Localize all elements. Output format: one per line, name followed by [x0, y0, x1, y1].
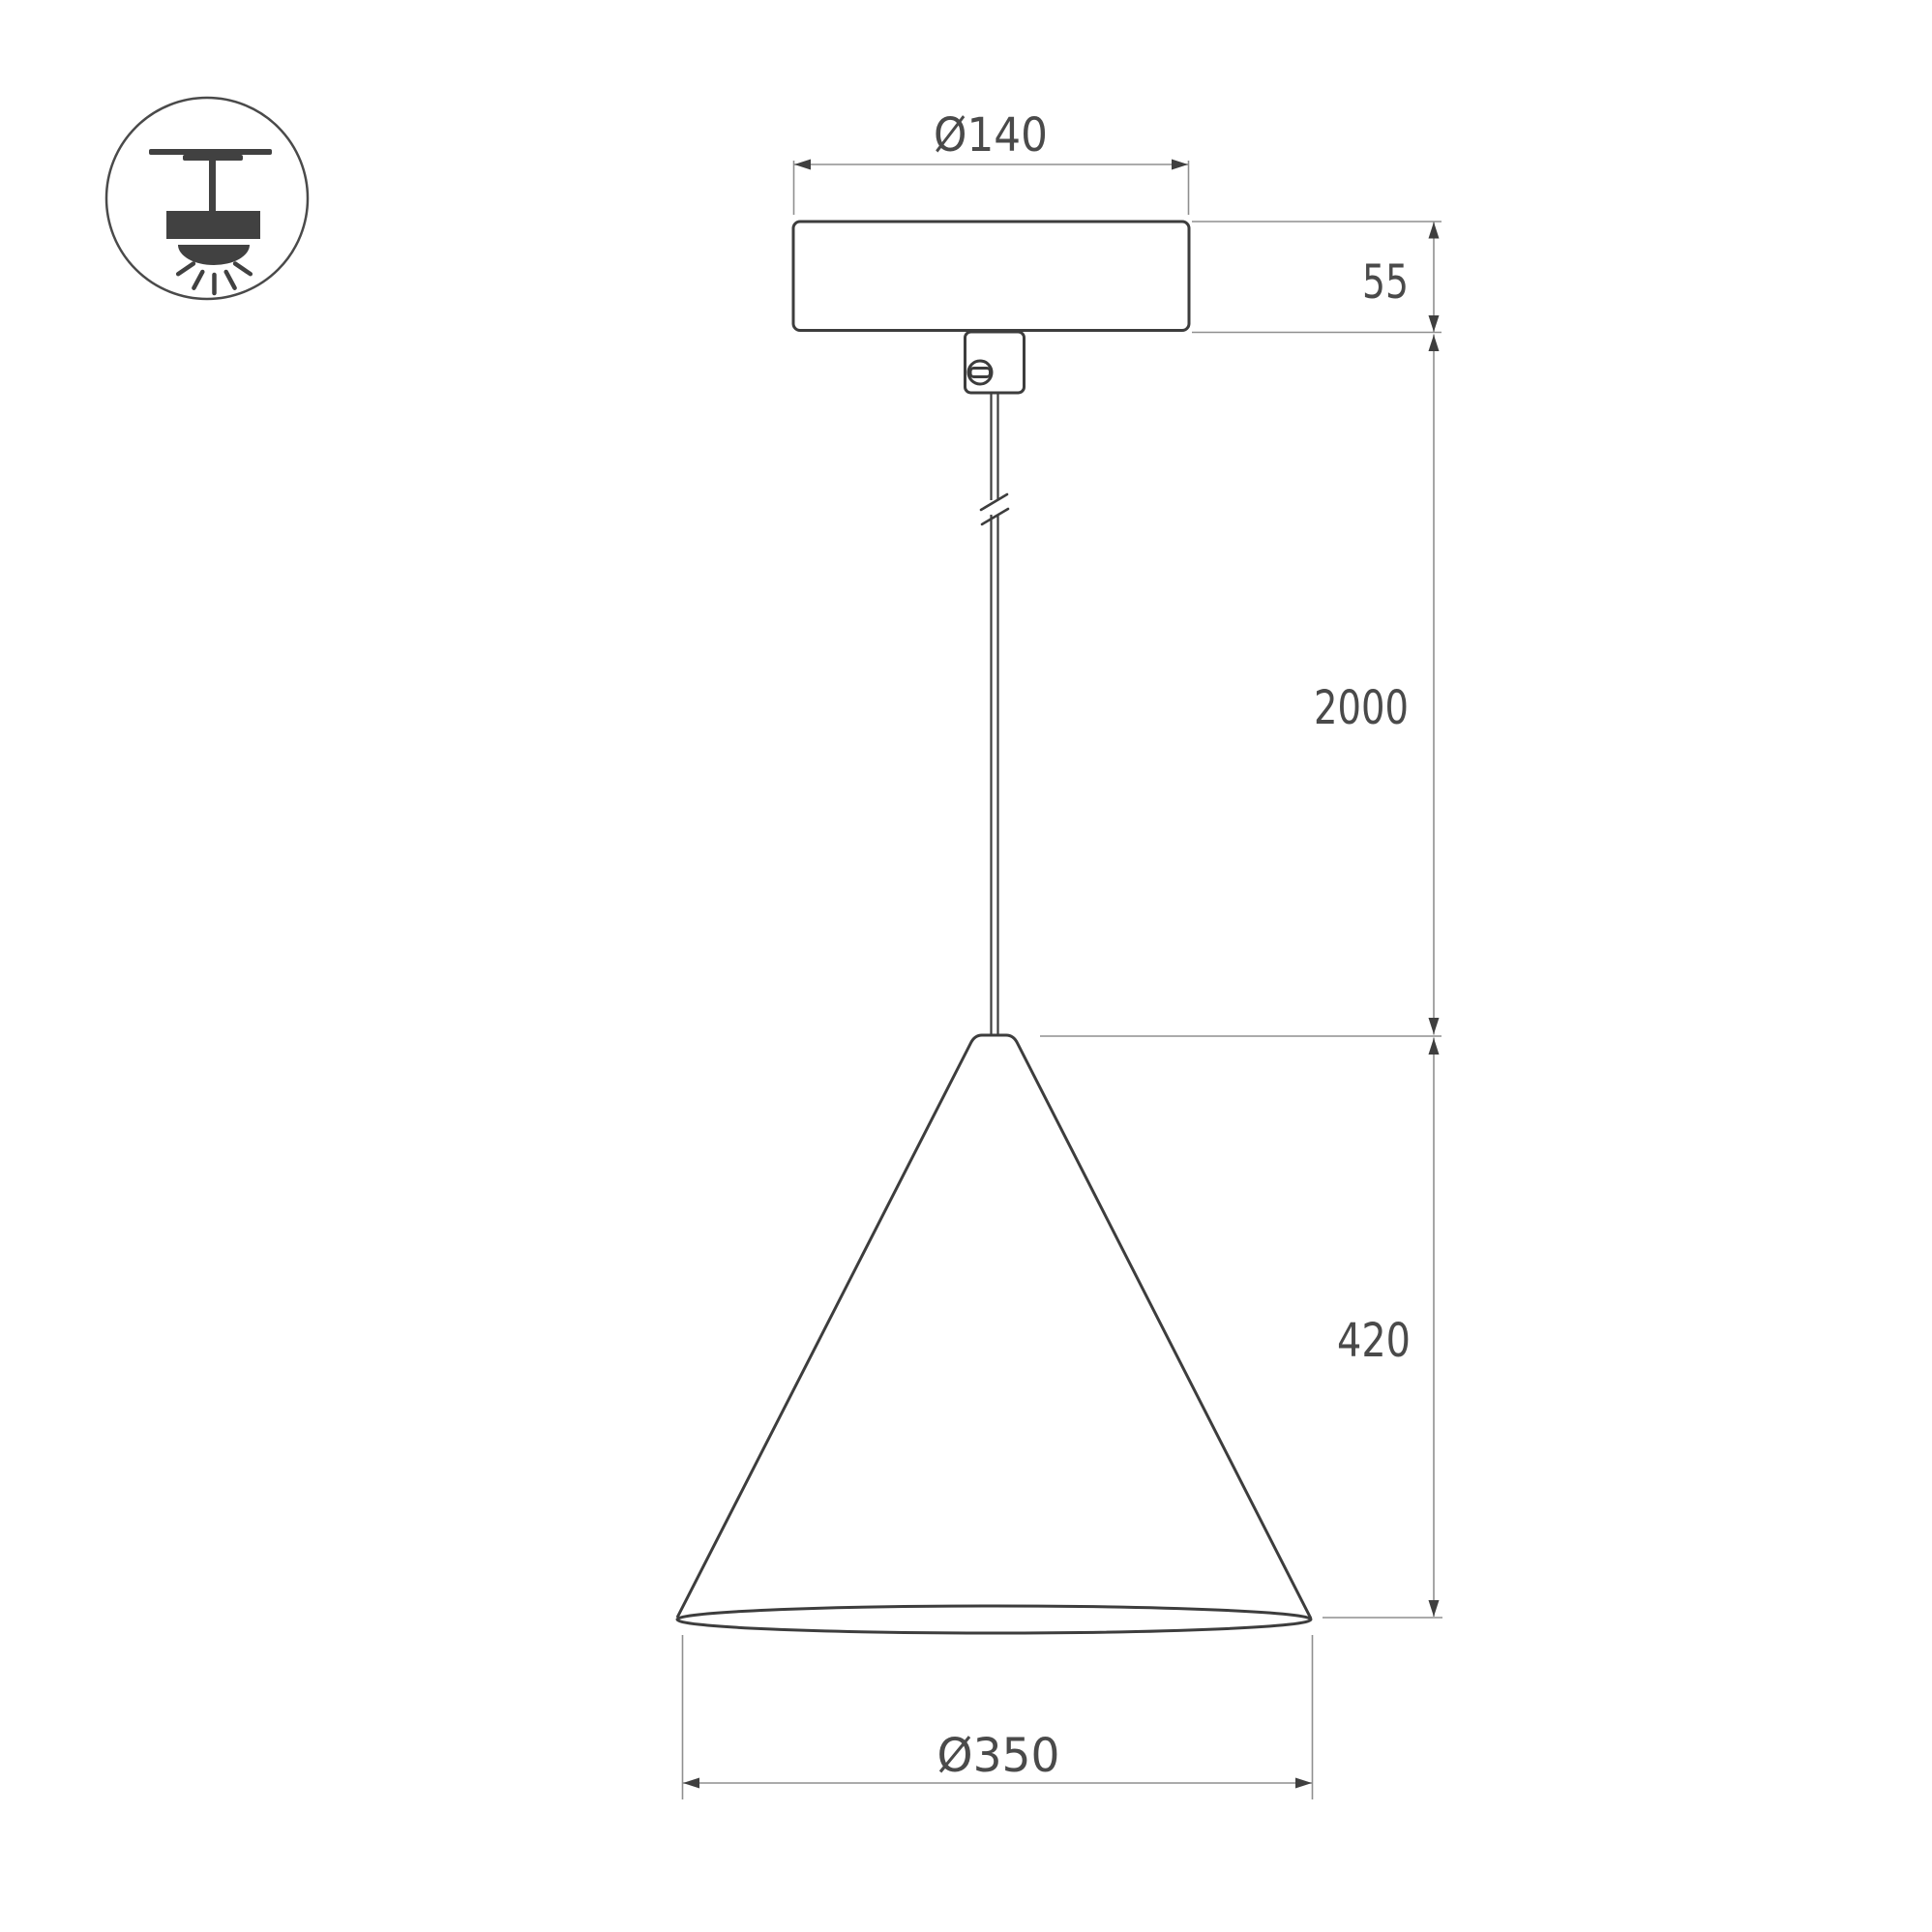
installation-type-icon — [106, 98, 308, 299]
fixture-drawing — [677, 222, 1311, 1633]
dim-label-canopy-height: 55 — [1362, 255, 1409, 310]
arrowhead-up-icon — [1429, 335, 1440, 351]
icon-lamp-body — [166, 211, 260, 239]
arrowhead-right-icon — [1172, 160, 1188, 170]
arrowhead-up-icon — [1429, 1038, 1440, 1055]
suspension-cable — [992, 393, 998, 1034]
dim-label-shade-diameter: Ø350 — [937, 1729, 1060, 1783]
arrowhead-left-icon — [683, 1778, 699, 1789]
icon-stem — [209, 160, 216, 216]
dimension-canopy-diameter: Ø140 — [794, 108, 1189, 215]
dimension-shade-height: 420 — [1323, 1038, 1442, 1619]
dimension-shade-diameter: Ø350 — [683, 1635, 1313, 1799]
dimension-canopy-height: 55 — [1192, 222, 1442, 333]
screw-slot — [970, 369, 991, 377]
arrowhead-down-icon — [1429, 1600, 1440, 1617]
dimension-cable-length: 2000 — [1040, 335, 1442, 1037]
cable-break-symbol — [981, 494, 1008, 524]
arrowhead-down-icon — [1429, 1018, 1440, 1034]
break-slash — [982, 509, 1008, 524]
arrowhead-left-icon — [794, 160, 811, 170]
pendant-lamp-technical-drawing: Ø140 55 2000 420 Ø350 — [0, 0, 1932, 1932]
canopy — [793, 222, 1189, 331]
break-slash — [981, 494, 1007, 510]
icon-circle — [106, 98, 308, 299]
arrowhead-right-icon — [1295, 1778, 1312, 1789]
arrowhead-down-icon — [1429, 315, 1440, 332]
shade-rim — [677, 1606, 1311, 1633]
dim-label-cable-length: 2000 — [1314, 681, 1409, 735]
dim-label-canopy-diameter: Ø140 — [934, 108, 1048, 163]
dim-label-shade-height: 420 — [1337, 1314, 1411, 1368]
icon-ceiling-bar — [149, 149, 272, 155]
drawing-canvas: Ø140 55 2000 420 Ø350 — [0, 0, 1932, 1932]
arrowhead-up-icon — [1429, 223, 1440, 239]
cone-shade — [677, 1035, 1311, 1619]
